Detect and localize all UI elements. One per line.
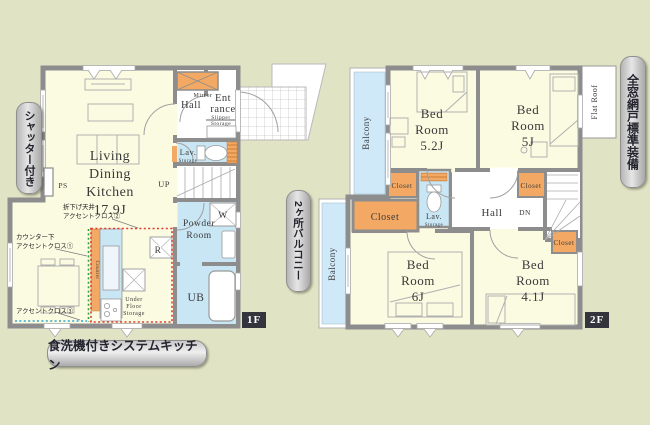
kitchen-sink bbox=[103, 246, 119, 290]
bed6-label-2: Room bbox=[401, 273, 435, 288]
floor2-plan: Balcony Balcony Flat Roof Bed Room 5.2J … bbox=[319, 66, 616, 338]
bed52-label-2: Room bbox=[415, 122, 449, 137]
ufs-label-2: Floor bbox=[126, 304, 142, 310]
closet-bed6-label: Closet bbox=[371, 212, 400, 223]
ps-label: PS bbox=[58, 181, 67, 190]
counter-label: Counter bbox=[94, 261, 99, 280]
ldk-label-2: Dining bbox=[89, 167, 131, 182]
balcony-upper-label: Balcony bbox=[361, 116, 371, 150]
entrance-label-2: rance bbox=[210, 104, 235, 115]
closet-bed5-label: Closet bbox=[521, 182, 542, 190]
bed41-label-3: 4.1J bbox=[521, 289, 544, 304]
ldk-label-3: Kitchen bbox=[86, 185, 134, 200]
lav-storage-label-1f: Storage bbox=[179, 159, 198, 164]
ufs-label-1: Under bbox=[125, 297, 143, 303]
shoe-storage-tall bbox=[227, 142, 237, 163]
slipper-label-2: Storage bbox=[211, 121, 231, 127]
floorplan-page: Living Dining Kitchen 17.9J Hall Ent ran… bbox=[0, 0, 650, 425]
closet-bed41-label: Closet bbox=[554, 239, 575, 247]
flat-roof-label: Flat Roof bbox=[590, 85, 599, 120]
system-kitchen-pill: 食洗機付きシステムキッチン bbox=[47, 340, 207, 367]
hall-label-1f: Hall bbox=[181, 100, 201, 111]
lav-label-1f: Lav. bbox=[180, 147, 197, 157]
bed6-label-3: 6J bbox=[412, 289, 425, 304]
lav-shelf bbox=[172, 146, 177, 162]
stove bbox=[101, 299, 121, 321]
two-balconies-pill: 2ヶ所バルコニー bbox=[286, 190, 311, 292]
floor1-plan: Living Dining Kitchen 17.9J Hall Ent ran… bbox=[8, 64, 327, 337]
lav-shelf-2f bbox=[421, 173, 447, 181]
ann-wall-label: アクセントクロス③ bbox=[16, 307, 74, 315]
bathtub bbox=[209, 271, 235, 321]
ufs-label-3: Storage bbox=[123, 311, 145, 317]
dn-label: DN bbox=[519, 208, 531, 217]
shutter-pill-text: シャッター付き bbox=[21, 110, 37, 187]
bed5-label-3: 5J bbox=[522, 134, 535, 149]
ann-counter-1: カウンター下 bbox=[16, 232, 55, 241]
shutter-pill: シャッター付き bbox=[16, 102, 42, 194]
bed5-label-1: Bed bbox=[517, 102, 539, 117]
pipe-shaft-box bbox=[44, 168, 53, 196]
ub-label: UB bbox=[188, 292, 205, 304]
mirror-label: Mirror bbox=[194, 93, 213, 99]
toilet-bowl-2f bbox=[427, 192, 441, 212]
door-gap-5 bbox=[490, 168, 518, 173]
washbasin bbox=[222, 231, 235, 258]
ldk-label-1: Living bbox=[90, 149, 130, 164]
balcony-lower-label: Balcony bbox=[327, 247, 337, 281]
refrigerator-label: R bbox=[155, 246, 162, 256]
washer-label: W bbox=[218, 211, 227, 221]
slipper-storage-box bbox=[207, 126, 236, 138]
ann-ceiling-1: 折下げ天井 bbox=[63, 202, 96, 211]
window-screens-pill-text: 全窓網戸標準装備 bbox=[625, 74, 642, 170]
two-balconies-pill-text: 2ヶ所バルコニー bbox=[291, 201, 306, 280]
closet-bed52-label: Closet bbox=[392, 182, 413, 190]
toilet-bowl-1f bbox=[205, 146, 227, 161]
ann-counter-2: アクセントクロス① bbox=[16, 242, 74, 250]
powder-label-1: Powder bbox=[183, 219, 215, 229]
bed41-label-1: Bed bbox=[522, 257, 544, 272]
hall-label-2f: Hall bbox=[482, 207, 503, 219]
powder-label-2: Room bbox=[186, 231, 211, 241]
system-kitchen-pill-text: 食洗機付きシステムキッチン bbox=[48, 335, 206, 373]
up-label: UP bbox=[158, 179, 170, 189]
bed41-label-2: Room bbox=[516, 273, 550, 288]
bed5-label-2: Room bbox=[511, 118, 545, 133]
lav-label-2f: Lav. bbox=[426, 212, 442, 221]
bed52-label-1: Bed bbox=[421, 106, 443, 121]
lav-storage-label-2f: Storage bbox=[425, 223, 443, 228]
bed52-label-3: 5.2J bbox=[420, 138, 443, 153]
window-screens-pill: 全窓網戸標準装備 bbox=[620, 56, 646, 188]
bed6-label-1: Bed bbox=[407, 257, 429, 272]
entrance-porch-tiles bbox=[240, 87, 306, 140]
floor1-badge: 1F bbox=[242, 312, 266, 328]
ann-ceiling-2: アクセントクロス② bbox=[63, 212, 121, 220]
toilet-tank-1f bbox=[197, 146, 205, 160]
entrance-label-1: Ent bbox=[215, 93, 231, 104]
floor2-badge: 2F bbox=[585, 312, 609, 328]
